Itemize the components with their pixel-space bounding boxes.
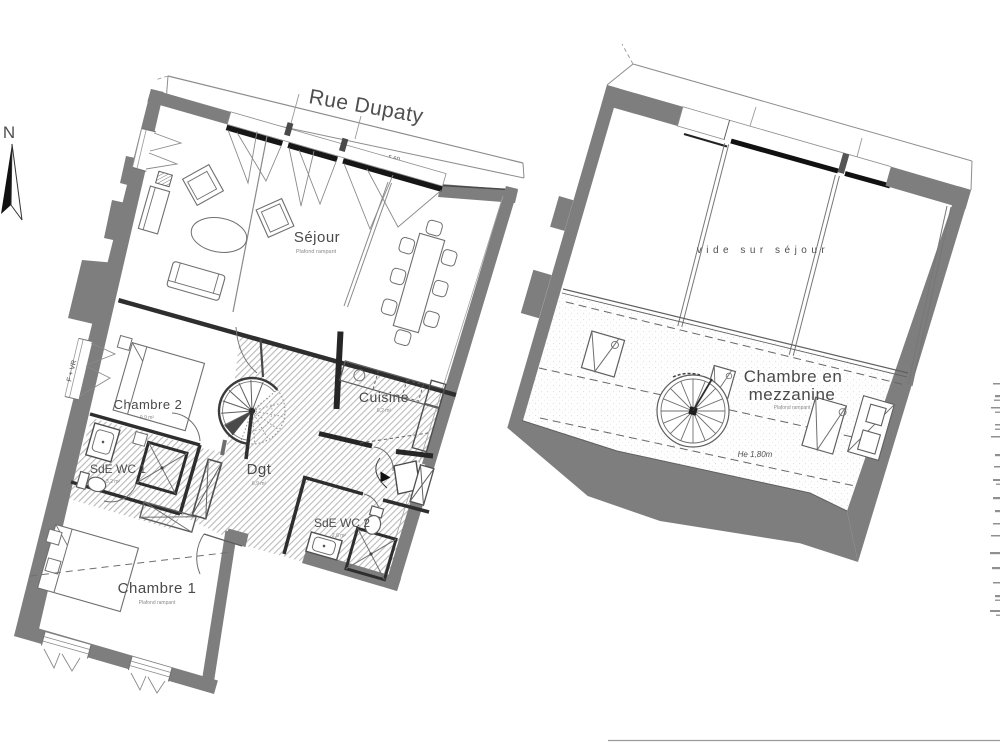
svg-text:Chambre en: Chambre en: [744, 367, 843, 386]
svg-text:6,2 m²: 6,2 m²: [377, 408, 392, 414]
svg-text:2,6 m²: 2,6 m²: [332, 533, 347, 539]
svg-text:He 1,80m: He 1,80m: [738, 450, 773, 459]
svg-text:Séjour: Séjour: [294, 229, 340, 246]
svg-text:Plafond rampant: Plafond rampant: [296, 249, 337, 255]
svg-text:Dgt: Dgt: [247, 461, 272, 478]
svg-text:mezzanine: mezzanine: [749, 385, 836, 404]
svg-text:Plafond rampant: Plafond rampant: [139, 600, 176, 606]
svg-text:N: N: [3, 123, 15, 142]
svg-text:6,9 m²: 6,9 m²: [252, 481, 267, 487]
svg-text:SdE WC 1: SdE WC 1: [90, 462, 146, 476]
svg-text:vide sur séjour: vide sur séjour: [697, 245, 830, 256]
svg-text:Cuisine: Cuisine: [359, 389, 409, 405]
svg-text:9,9 m²: 9,9 m²: [140, 415, 155, 421]
svg-text:Chambre 1: Chambre 1: [118, 580, 197, 597]
svg-text:Chambre 2: Chambre 2: [114, 397, 183, 412]
svg-text:3,2 m²: 3,2 m²: [106, 479, 121, 485]
svg-text:SdE WC 2: SdE WC 2: [314, 516, 370, 530]
svg-text:Plafond rampant: Plafond rampant: [774, 405, 811, 411]
